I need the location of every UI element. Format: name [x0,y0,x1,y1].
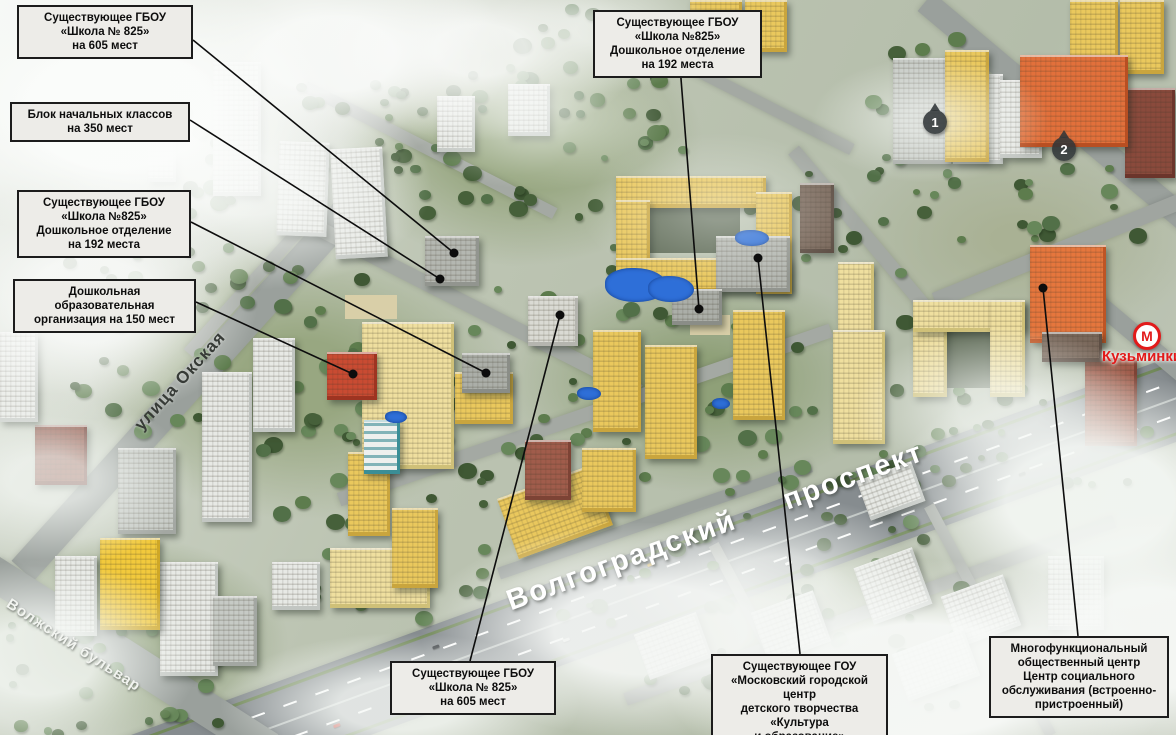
tree [1140,426,1154,438]
tree [375,138,384,146]
callout-primary-classes-350: Блок начальных классов на 350 мест [10,102,190,142]
tree [330,473,348,488]
tree [639,472,651,482]
building [100,538,160,630]
tree [707,561,718,570]
building [202,372,252,522]
tree [16,664,28,675]
tree [570,433,585,446]
building [0,332,38,422]
tree [145,717,154,724]
building [364,420,400,474]
tree [296,83,307,93]
tree [569,378,577,385]
car [1018,471,1026,476]
tree [302,96,318,110]
tree [807,406,818,415]
building [945,50,989,162]
building [35,425,87,485]
building [213,62,261,196]
tree [817,538,831,550]
building [118,448,176,534]
tree [1105,165,1114,172]
tree [223,243,234,253]
tree [948,32,966,47]
tree [326,514,345,530]
tree [627,575,634,581]
building [645,345,697,459]
building [1020,55,1128,147]
tree [1042,216,1060,231]
tree [394,166,403,174]
tree [419,206,436,220]
tree [1123,478,1132,486]
building [733,310,785,420]
tree [704,601,719,614]
tree [283,271,298,284]
tree [256,444,271,457]
tree [821,512,833,522]
tree [8,622,16,629]
tree [948,177,962,189]
tree [1060,163,1075,175]
tree [679,686,690,695]
tree [1129,228,1147,244]
building [833,330,885,444]
tree [52,729,64,735]
aerial-masterplan-map: улица Окская Волгоградский проспект Волж… [0,0,1176,735]
tree [622,438,630,445]
tree [513,38,532,54]
tree [1039,399,1047,406]
tree [117,365,129,376]
building [1085,356,1137,446]
tree [6,634,15,641]
tree [565,4,579,16]
tree [800,564,814,576]
tree [225,196,236,205]
tree [380,99,388,106]
tree [494,286,502,293]
tree [426,494,437,503]
tree [913,189,920,195]
tree [99,357,108,365]
map-marker-1: 1 [923,110,947,134]
building [990,300,1025,397]
tree [353,439,361,445]
tree [295,496,310,509]
building [582,448,636,512]
tree [896,315,914,331]
building [800,183,834,253]
building [330,147,388,260]
building [528,296,578,346]
tree [678,146,688,154]
tree [214,355,231,370]
tree [354,273,370,287]
tree [443,151,461,166]
tree [890,384,904,396]
tree [478,105,488,113]
callout-culture-education-center: Существующее ГОУ «Московский городской ц… [711,654,888,735]
tree [192,261,205,272]
car [563,637,571,642]
tree [1110,204,1118,211]
tree [590,93,606,106]
building [892,629,981,702]
tree [713,468,730,483]
tree [192,125,210,140]
building [327,352,377,400]
building [1030,245,1106,343]
tree [647,125,666,141]
car [333,723,341,728]
building [593,330,641,432]
tree [1101,184,1118,198]
tree [274,299,292,314]
tree [559,108,570,117]
tree [419,190,431,200]
building [160,562,218,676]
car [785,561,793,566]
tree [838,245,847,253]
building [893,58,951,164]
tree [370,80,381,90]
tree [601,155,608,161]
tree [867,170,881,182]
tree [1025,179,1033,186]
building [1042,332,1102,362]
tree [415,611,433,626]
tree [14,720,27,731]
metro-icon: М [1133,322,1161,350]
tree [998,429,1006,436]
tree [778,476,786,483]
callout-multifunctional-public-center: Многофункциональный общественный центр Ц… [989,636,1169,718]
tree [576,110,585,118]
pond [712,398,730,409]
tree [468,71,478,80]
building [276,141,329,237]
tree [63,257,77,269]
tree [563,142,576,153]
tree [801,254,811,263]
tree [575,213,584,220]
tree [476,568,489,579]
tree [458,191,474,205]
callout-school-825-605-top: Существующее ГБОУ «Школа № 825» на 605 м… [17,5,193,59]
tree [315,306,326,316]
tree [574,91,584,99]
tree [794,460,811,475]
tree [304,316,317,327]
tree [1031,235,1040,243]
tree [903,515,919,529]
pond [577,387,601,400]
pond [648,276,694,302]
tree [917,534,931,546]
tree [79,687,93,699]
tree [888,634,905,648]
building [525,440,571,500]
courtyard [345,295,397,319]
tree [468,325,481,336]
tree [9,681,17,688]
tree [623,302,640,317]
tree [846,231,863,245]
tree [942,475,956,487]
tree [1018,188,1033,200]
tree [410,165,421,174]
tree [805,171,812,177]
tree [943,169,953,177]
tree [738,430,757,446]
tree [1073,477,1082,485]
tree [758,450,768,459]
tree [538,414,550,424]
tree [507,341,516,349]
building [213,596,257,666]
building [425,236,479,286]
tree [996,452,1008,462]
tree [417,107,428,116]
tree [717,598,735,613]
building [272,562,320,610]
tree [478,544,491,555]
tree [481,194,493,204]
tree [791,342,804,353]
tree [458,463,476,479]
tree [765,429,782,443]
tree [170,414,185,427]
tree [930,191,939,198]
tree [538,24,548,33]
tree [949,700,959,709]
tree [623,108,636,119]
tree [905,614,913,621]
building [253,338,295,432]
tree [230,269,248,284]
tree [395,143,402,149]
tree [831,639,841,647]
tree [205,283,217,293]
tree [882,154,891,161]
building [1048,556,1104,630]
building [462,353,510,393]
tree [541,37,554,48]
tree [273,506,292,522]
tree [44,727,53,734]
tree [865,95,881,109]
tree [105,403,122,417]
tree [477,478,486,486]
tree [459,585,473,597]
tree [1017,220,1028,229]
tree [736,470,750,482]
tree [196,302,209,313]
tree [396,91,406,99]
tree [501,442,516,455]
tree [1060,477,1074,489]
callout-school-825-preschool-192-left: Существующее ГБОУ «Школа №825» Дошкольно… [17,190,191,258]
building [508,84,550,136]
tree [646,109,661,121]
tree [558,29,570,39]
tree [212,718,224,728]
tree [463,166,481,181]
tree [473,586,488,599]
map-marker-2: 2 [1052,137,1076,161]
tree [789,406,802,417]
tree [524,194,537,205]
callout-preschool-org-150: Дошкольная образовательная организация н… [13,279,196,333]
tree [263,261,275,271]
building [55,556,97,636]
building [392,508,438,588]
metro-station-name: Кузьминки [1102,348,1176,365]
tree [915,43,930,56]
tree [479,500,489,508]
tree [949,427,958,435]
tree [335,102,350,115]
tree [391,153,399,160]
tree [924,703,934,711]
building [1125,88,1175,178]
tree [100,266,109,274]
tree [556,609,570,621]
tree [1088,481,1096,488]
building [437,96,475,152]
tree [563,61,578,74]
tree [385,114,393,121]
tree [506,64,515,71]
tree [76,721,87,730]
tree [917,206,932,219]
callout-school-825-preschool-192-center: Существующее ГБОУ «Школа №825» Дошкольно… [593,10,762,78]
tree [346,432,356,440]
tree [878,217,889,226]
tree [822,608,835,619]
tree [982,420,994,430]
tree [957,236,966,243]
tree [1027,221,1043,234]
pond [735,230,769,246]
tree [627,78,640,89]
pond [385,411,407,423]
tree [588,199,603,212]
callout-school-825-605-bottom: Существующее ГБОУ «Школа № 825» на 605 м… [390,661,556,715]
